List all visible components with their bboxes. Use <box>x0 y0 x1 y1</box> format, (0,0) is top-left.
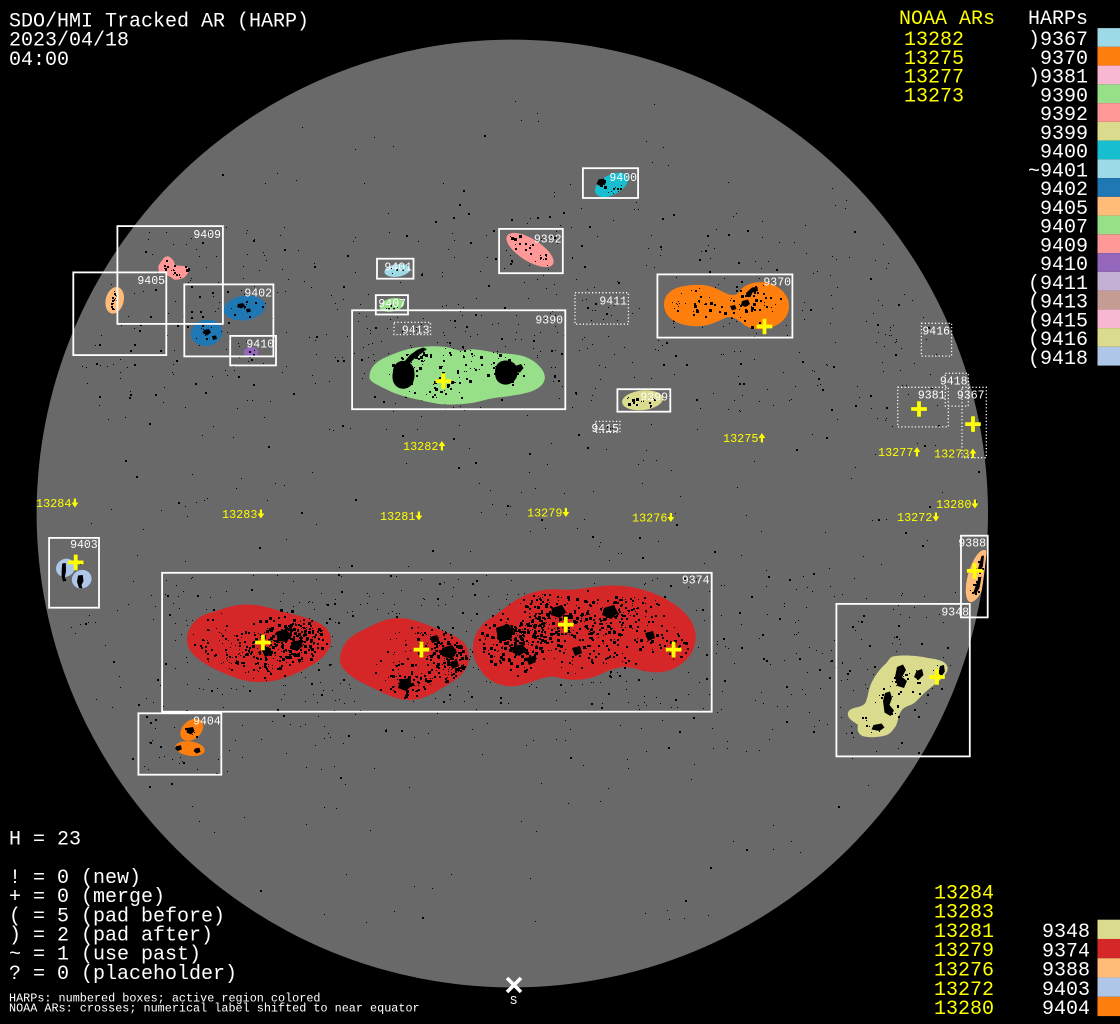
svg-text:NOAA ARs: NOAA ARs <box>899 8 995 31</box>
svg-text:13273: 13273 <box>934 448 969 462</box>
svg-text:9410: 9410 <box>246 339 274 352</box>
svg-text:HARPs: HARPs <box>1028 8 1088 31</box>
svg-text:9370: 9370 <box>763 277 791 290</box>
svg-text:9401: 9401 <box>384 262 412 275</box>
svg-text:9374: 9374 <box>682 575 710 588</box>
svg-text:9388: 9388 <box>958 538 986 551</box>
svg-text:9416: 9416 <box>922 326 950 339</box>
svg-text:9411: 9411 <box>599 296 627 309</box>
svg-text:9399: 9399 <box>640 392 668 405</box>
svg-text:9367: 9367 <box>957 390 985 403</box>
svg-text:9409: 9409 <box>193 229 221 242</box>
svg-text:9413: 9413 <box>402 325 430 338</box>
svg-text:S: S <box>510 994 517 1008</box>
svg-text:13281: 13281 <box>380 510 415 524</box>
svg-text:9348: 9348 <box>941 607 969 620</box>
svg-text:13275: 13275 <box>723 432 758 446</box>
svg-text:13276: 13276 <box>632 512 667 526</box>
svg-text:04:00: 04:00 <box>9 49 69 72</box>
svg-text:9390: 9390 <box>535 315 563 328</box>
svg-text:9415: 9415 <box>591 423 619 436</box>
svg-text:13277: 13277 <box>878 446 913 460</box>
svg-text:9392: 9392 <box>534 234 562 247</box>
svg-text:13273: 13273 <box>904 86 964 109</box>
svg-text:9381: 9381 <box>918 390 946 403</box>
svg-text:13283: 13283 <box>222 508 257 522</box>
svg-text:NOAA ARs: crosses; numerical l: NOAA ARs: crosses; numerical label shift… <box>9 1002 420 1016</box>
svg-text:13272: 13272 <box>897 511 932 525</box>
svg-text:9418: 9418 <box>940 376 968 389</box>
svg-text:(9418: (9418 <box>1028 348 1088 371</box>
svg-text:13280: 13280 <box>936 498 971 512</box>
svg-text:9407: 9407 <box>378 298 406 311</box>
svg-text:? = 0 (placeholder): ? = 0 (placeholder) <box>9 963 237 986</box>
svg-text:H = 23: H = 23 <box>9 829 81 852</box>
svg-text:9405: 9405 <box>137 275 165 288</box>
svg-text:9403: 9403 <box>70 539 98 552</box>
svg-text:9402: 9402 <box>244 288 272 301</box>
svg-text:13279: 13279 <box>527 507 562 521</box>
svg-text:9400: 9400 <box>609 172 637 185</box>
svg-text:9404: 9404 <box>1042 998 1090 1021</box>
svg-text:13282: 13282 <box>403 440 438 454</box>
svg-text:9404: 9404 <box>193 716 221 729</box>
svg-text:13284: 13284 <box>36 497 71 511</box>
svg-text:13280: 13280 <box>934 998 994 1021</box>
